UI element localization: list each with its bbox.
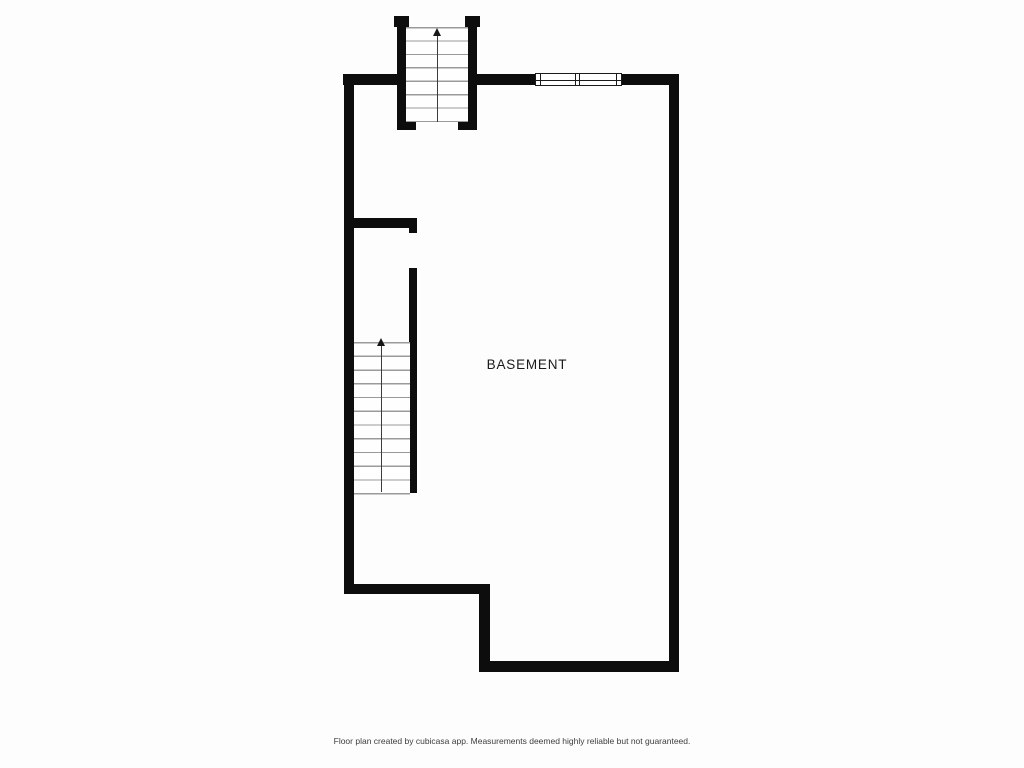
- basement-staircase-arrow-shaft: [381, 345, 382, 492]
- wall-notch-vertical: [479, 584, 490, 672]
- wall-bottom: [479, 661, 679, 672]
- room-label: BASEMENT: [450, 357, 604, 372]
- window-post: [575, 74, 576, 85]
- stairwell-left-wall: [397, 16, 406, 130]
- window-post: [616, 74, 617, 85]
- window-post: [579, 74, 580, 85]
- wall-notch-horizontal: [344, 584, 490, 594]
- window-post: [540, 74, 541, 85]
- interior-wall-door-stub: [409, 228, 417, 233]
- window: [535, 73, 622, 86]
- stairwell-right-wall: [468, 16, 477, 130]
- footer-disclaimer: Floor plan created by cubicasa app. Meas…: [0, 736, 1024, 746]
- wall-right: [669, 74, 679, 672]
- arrow-up-icon: [433, 28, 441, 36]
- entry-staircase-arrow-shaft: [437, 35, 438, 122]
- wall-top-middle-segment: [475, 74, 536, 85]
- wall-left: [344, 74, 354, 594]
- floor-plan-canvas: BASEMENT Floor plan created by cubicasa …: [0, 0, 1024, 768]
- interior-wall-horizontal: [352, 218, 417, 228]
- arrow-up-icon: [377, 338, 385, 346]
- interior-wall-vertical: [409, 268, 417, 493]
